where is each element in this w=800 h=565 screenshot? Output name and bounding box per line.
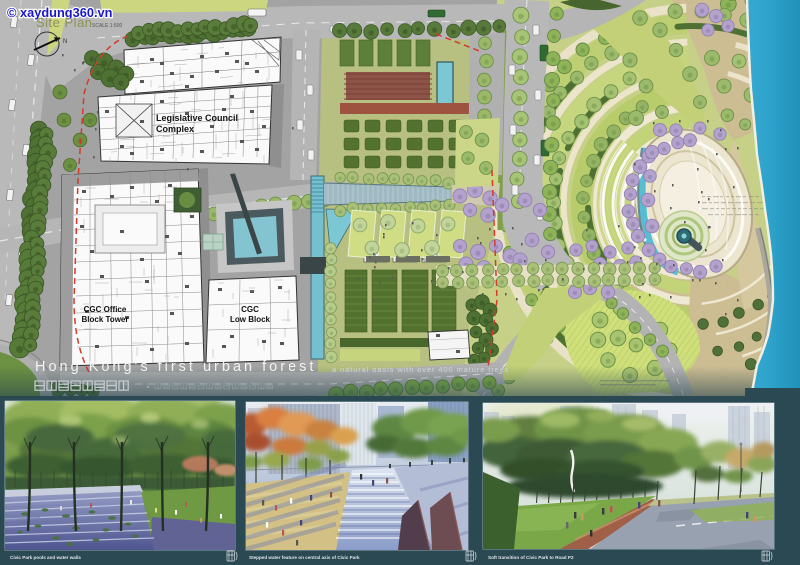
svg-text:Legislative Council: Legislative Council — [156, 113, 238, 123]
svg-text:Stepped water feature on centr: Stepped water feature on central axis of… — [249, 555, 360, 560]
svg-text:a natural oasis with over 400: a natural oasis with over 400 mature tre… — [332, 365, 509, 374]
svg-text:Civic Park pools and water wal: Civic Park pools and water walls — [10, 555, 81, 560]
svg-text:Low Block: Low Block — [230, 315, 271, 324]
svg-text:Soft transition of Civic Park: Soft transition of Civic Park to Road P2 — [488, 555, 574, 560]
svg-text:Block Tower: Block Tower — [82, 315, 129, 324]
svg-text:Complex: Complex — [156, 124, 194, 134]
svg-text:CGC Office: CGC Office — [84, 305, 127, 314]
svg-text:CGC: CGC — [241, 305, 259, 314]
svg-text:SCALE 1:500: SCALE 1:500 — [92, 23, 123, 29]
svg-text:N: N — [63, 39, 67, 45]
svg-text:Hong Kong's first urban forest: Hong Kong's first urban forest — [35, 359, 316, 375]
svg-text:Site Plan: Site Plan — [36, 15, 93, 30]
